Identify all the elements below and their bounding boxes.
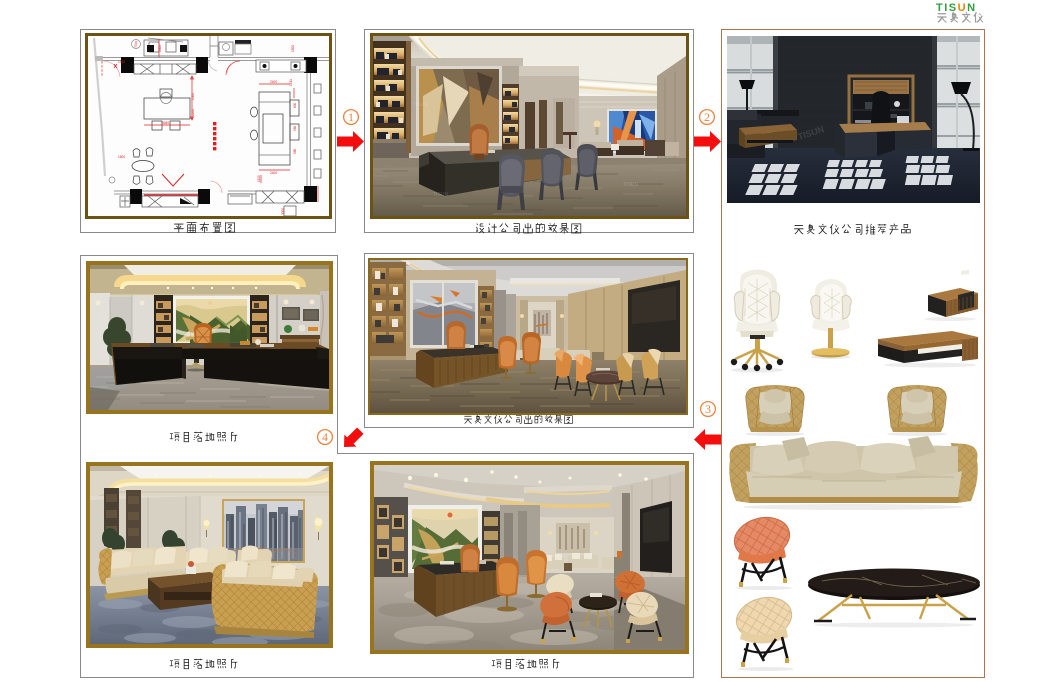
svg-text:1115: 1115 xyxy=(257,175,261,182)
svg-text:600: 600 xyxy=(293,102,297,108)
svg-text:2000: 2000 xyxy=(158,45,162,52)
svg-text:580: 580 xyxy=(293,148,297,154)
svg-text:1510: 1510 xyxy=(118,60,125,64)
svg-text:1500: 1500 xyxy=(118,155,125,159)
svg-text:1500: 1500 xyxy=(291,45,295,52)
svg-text:1: 1 xyxy=(348,110,354,124)
svg-text:1200: 1200 xyxy=(191,109,195,116)
svg-text:1500: 1500 xyxy=(191,93,195,100)
svg-text:4: 4 xyxy=(322,430,328,444)
svg-text:3: 3 xyxy=(705,402,711,416)
svg-text:2400: 2400 xyxy=(270,171,277,175)
svg-text:2400: 2400 xyxy=(270,80,277,84)
svg-text:TISUN: TISUN xyxy=(603,72,618,78)
svg-text:2: 2 xyxy=(704,110,710,124)
svg-text:TISUN: TISUN xyxy=(413,102,428,108)
svg-text:TISUN: TISUN xyxy=(623,182,638,188)
svg-text:960: 960 xyxy=(293,125,297,131)
svg-text:3000: 3000 xyxy=(281,208,285,215)
svg-text:1411: 1411 xyxy=(289,79,293,86)
svg-text:TISUN: TISUN xyxy=(433,192,448,198)
svg-text:3080: 3080 xyxy=(162,121,169,125)
svg-text:1545: 1545 xyxy=(133,40,138,48)
